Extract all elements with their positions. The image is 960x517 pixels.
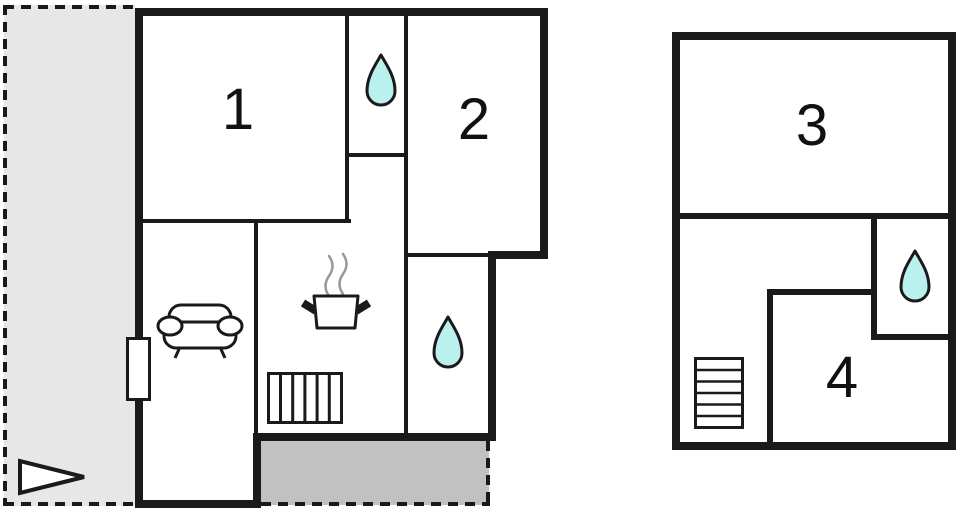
water-drop-icon bbox=[364, 52, 398, 108]
wall-exterior-right-lower bbox=[488, 251, 496, 441]
steam-line bbox=[340, 254, 347, 294]
water-drop-icon bbox=[898, 248, 932, 304]
wall-kitchen-left bbox=[254, 223, 258, 433]
wall-bathroom3-left bbox=[871, 213, 877, 340]
cooking-pot-icon bbox=[298, 250, 374, 332]
wall-upper-bottom bbox=[672, 442, 956, 450]
sofa-icon bbox=[154, 302, 246, 360]
door-marker bbox=[126, 337, 151, 401]
water-drop-icon bbox=[431, 314, 465, 370]
wall-upper-top bbox=[672, 32, 956, 40]
wall-exterior-top bbox=[135, 8, 548, 16]
wall-room1-right bbox=[345, 15, 349, 223]
pot-body bbox=[314, 296, 358, 328]
room-label-1: 1 bbox=[222, 81, 254, 139]
wall-upper-left bbox=[672, 32, 680, 450]
wall-room4-top bbox=[767, 289, 877, 295]
room-label-3: 3 bbox=[796, 97, 828, 155]
wall-room3-bottom bbox=[680, 213, 948, 219]
wall-exterior-kitchen-bottom bbox=[253, 433, 496, 441]
wall-bathroom1-bottom bbox=[345, 153, 408, 157]
direction-arrow-icon bbox=[14, 456, 90, 498]
wall-exterior-left bbox=[135, 8, 143, 508]
wall-exterior-step-vertical bbox=[253, 433, 261, 508]
wall-bathroom3-bottom bbox=[871, 334, 948, 340]
stairs-icon bbox=[694, 357, 744, 429]
patio-area bbox=[4, 5, 135, 506]
wall-bathroom2-top bbox=[404, 253, 492, 257]
room-label-4: 4 bbox=[826, 349, 858, 407]
wall-exterior-bottom bbox=[135, 500, 261, 508]
steam-line bbox=[326, 256, 333, 296]
wall-upper-right bbox=[948, 32, 956, 450]
room-label-2: 2 bbox=[458, 91, 490, 149]
wall-room1-bottom bbox=[139, 219, 351, 223]
wall-room2-left bbox=[404, 15, 408, 433]
terrace-area bbox=[261, 441, 489, 505]
wall-room4-left bbox=[767, 289, 773, 442]
floor-plan: 1 2 3 4 bbox=[0, 0, 960, 517]
stairs-icon bbox=[267, 372, 343, 424]
wall-exterior-step bbox=[488, 251, 548, 259]
wall-exterior-right-upper bbox=[540, 8, 548, 259]
